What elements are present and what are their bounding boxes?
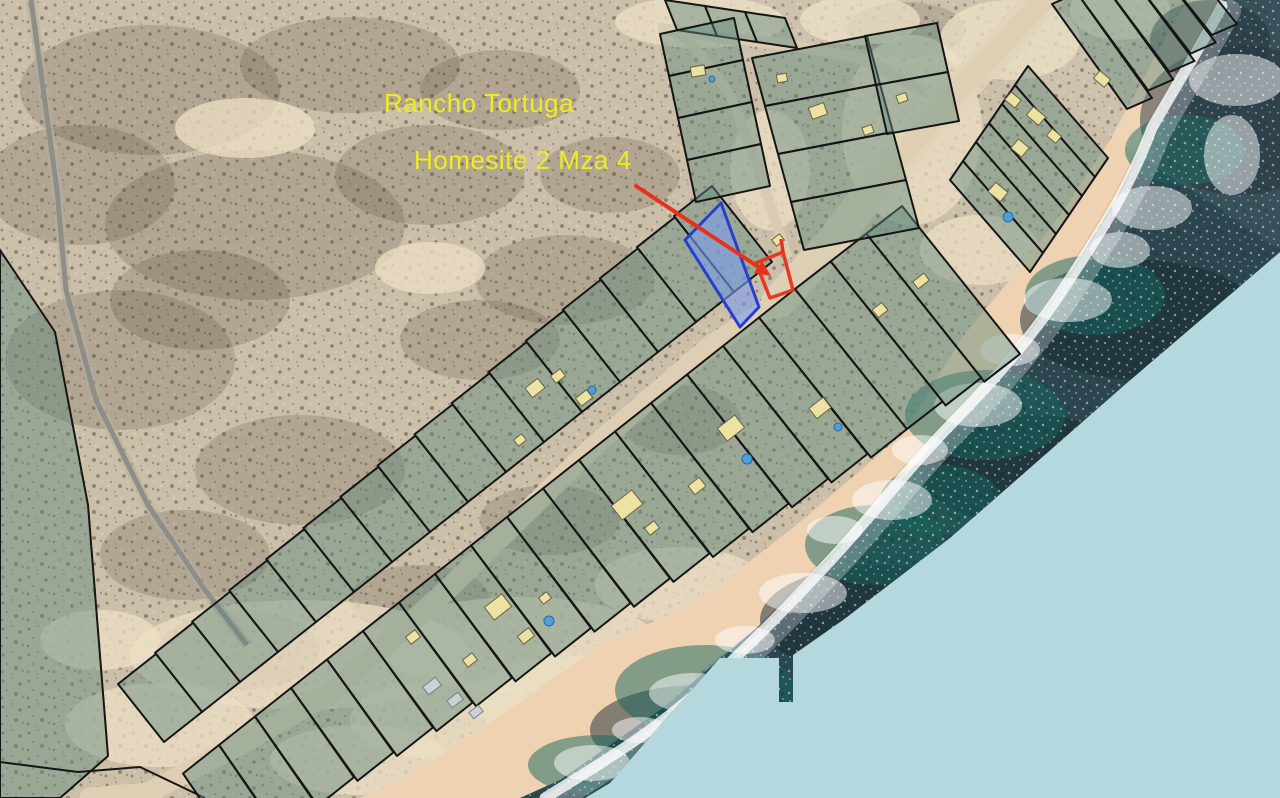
- foam-blob: [1024, 278, 1112, 322]
- foam-blob: [1112, 186, 1192, 230]
- callout-parcel-tick: [781, 239, 783, 252]
- aerial-parcel-map: Rancho Tortuga Homesite 2 Mza 4: [0, 0, 1280, 798]
- map-label-title: Rancho Tortuga: [384, 88, 574, 118]
- pool: [834, 423, 842, 431]
- foam-blob: [759, 573, 847, 613]
- foam-blob: [1090, 232, 1150, 268]
- desert-shrub-patch: [335, 125, 525, 225]
- foam-blob: [715, 626, 775, 654]
- foam-blob: [612, 717, 668, 743]
- pool: [1003, 212, 1013, 222]
- desert-shrub-patch: [110, 250, 290, 350]
- desert-sand-patch: [175, 98, 315, 158]
- foam-blob: [852, 480, 932, 520]
- pool: [742, 454, 752, 464]
- building: [690, 65, 706, 77]
- building: [776, 73, 787, 83]
- foam-blob: [554, 745, 630, 781]
- pool: [709, 76, 715, 82]
- aerial-photo: [0, 0, 1280, 798]
- foam-blob: [892, 435, 948, 465]
- desert-sand-patch: [375, 242, 485, 294]
- map-label-subtitle: Homesite 2 Mza 4: [414, 145, 632, 175]
- foam-blob: [807, 516, 863, 544]
- map-canvas: Rancho Tortuga Homesite 2 Mza 4: [0, 0, 1280, 798]
- pool: [544, 616, 554, 626]
- foam-blob: [649, 673, 737, 713]
- pool: [588, 386, 596, 394]
